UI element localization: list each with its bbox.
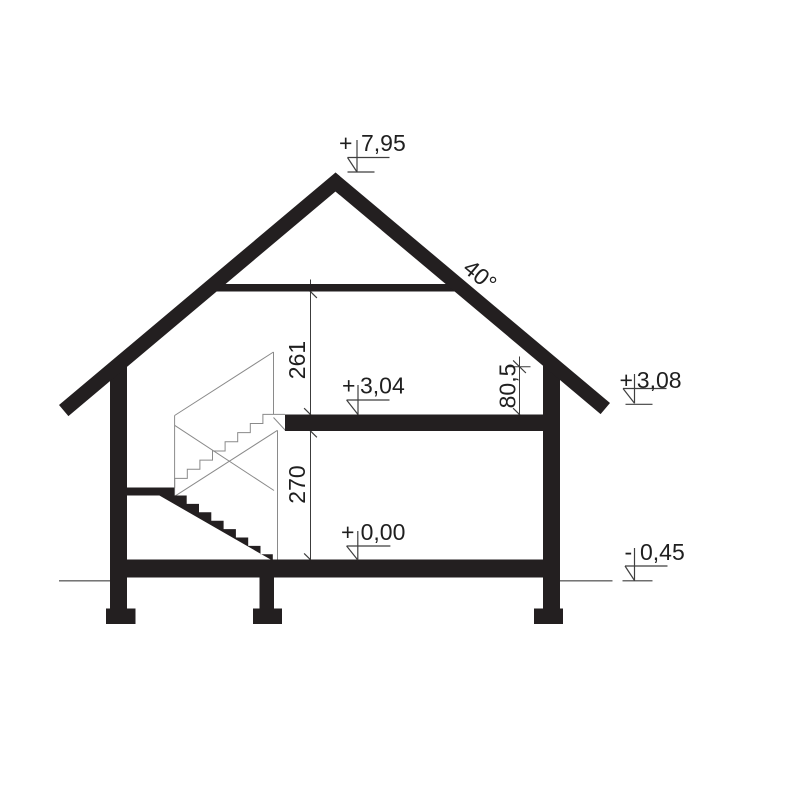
svg-text:270: 270: [284, 465, 310, 503]
svg-text:-: -: [625, 539, 633, 565]
svg-text:+: +: [342, 373, 355, 399]
svg-text:7,95: 7,95: [361, 130, 406, 156]
svg-text:0,45: 0,45: [640, 539, 685, 565]
svg-text:+: +: [339, 130, 352, 156]
svg-text:3,08: 3,08: [637, 367, 682, 393]
svg-text:0,00: 0,00: [361, 519, 406, 545]
svg-text:+: +: [341, 519, 354, 545]
svg-text:261: 261: [284, 341, 310, 379]
svg-text:+: +: [620, 367, 633, 393]
svg-text:80,5: 80,5: [495, 364, 521, 409]
svg-text:3,04: 3,04: [360, 373, 405, 399]
